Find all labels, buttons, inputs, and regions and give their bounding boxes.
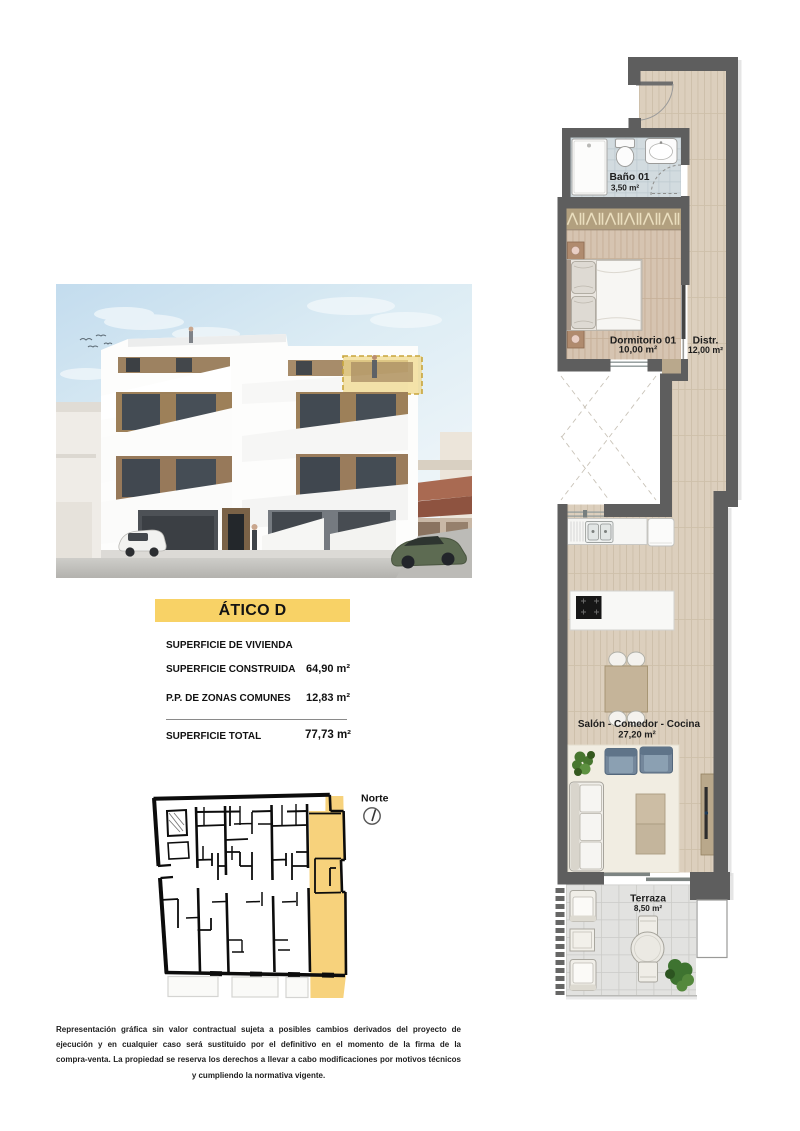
svg-text:Baño 01: Baño 01 [609, 172, 649, 183]
svg-text:Norte: Norte [361, 793, 389, 805]
svg-text:3,50 m²: 3,50 m² [611, 184, 639, 193]
svg-text:Terraza: Terraza [630, 894, 666, 905]
svg-text:12,00 m²: 12,00 m² [688, 345, 723, 355]
svg-text:27,20 m²: 27,20 m² [618, 729, 656, 740]
svg-text:10,00 m²: 10,00 m² [619, 345, 657, 356]
svg-text:8,50 m²: 8,50 m² [634, 904, 662, 913]
